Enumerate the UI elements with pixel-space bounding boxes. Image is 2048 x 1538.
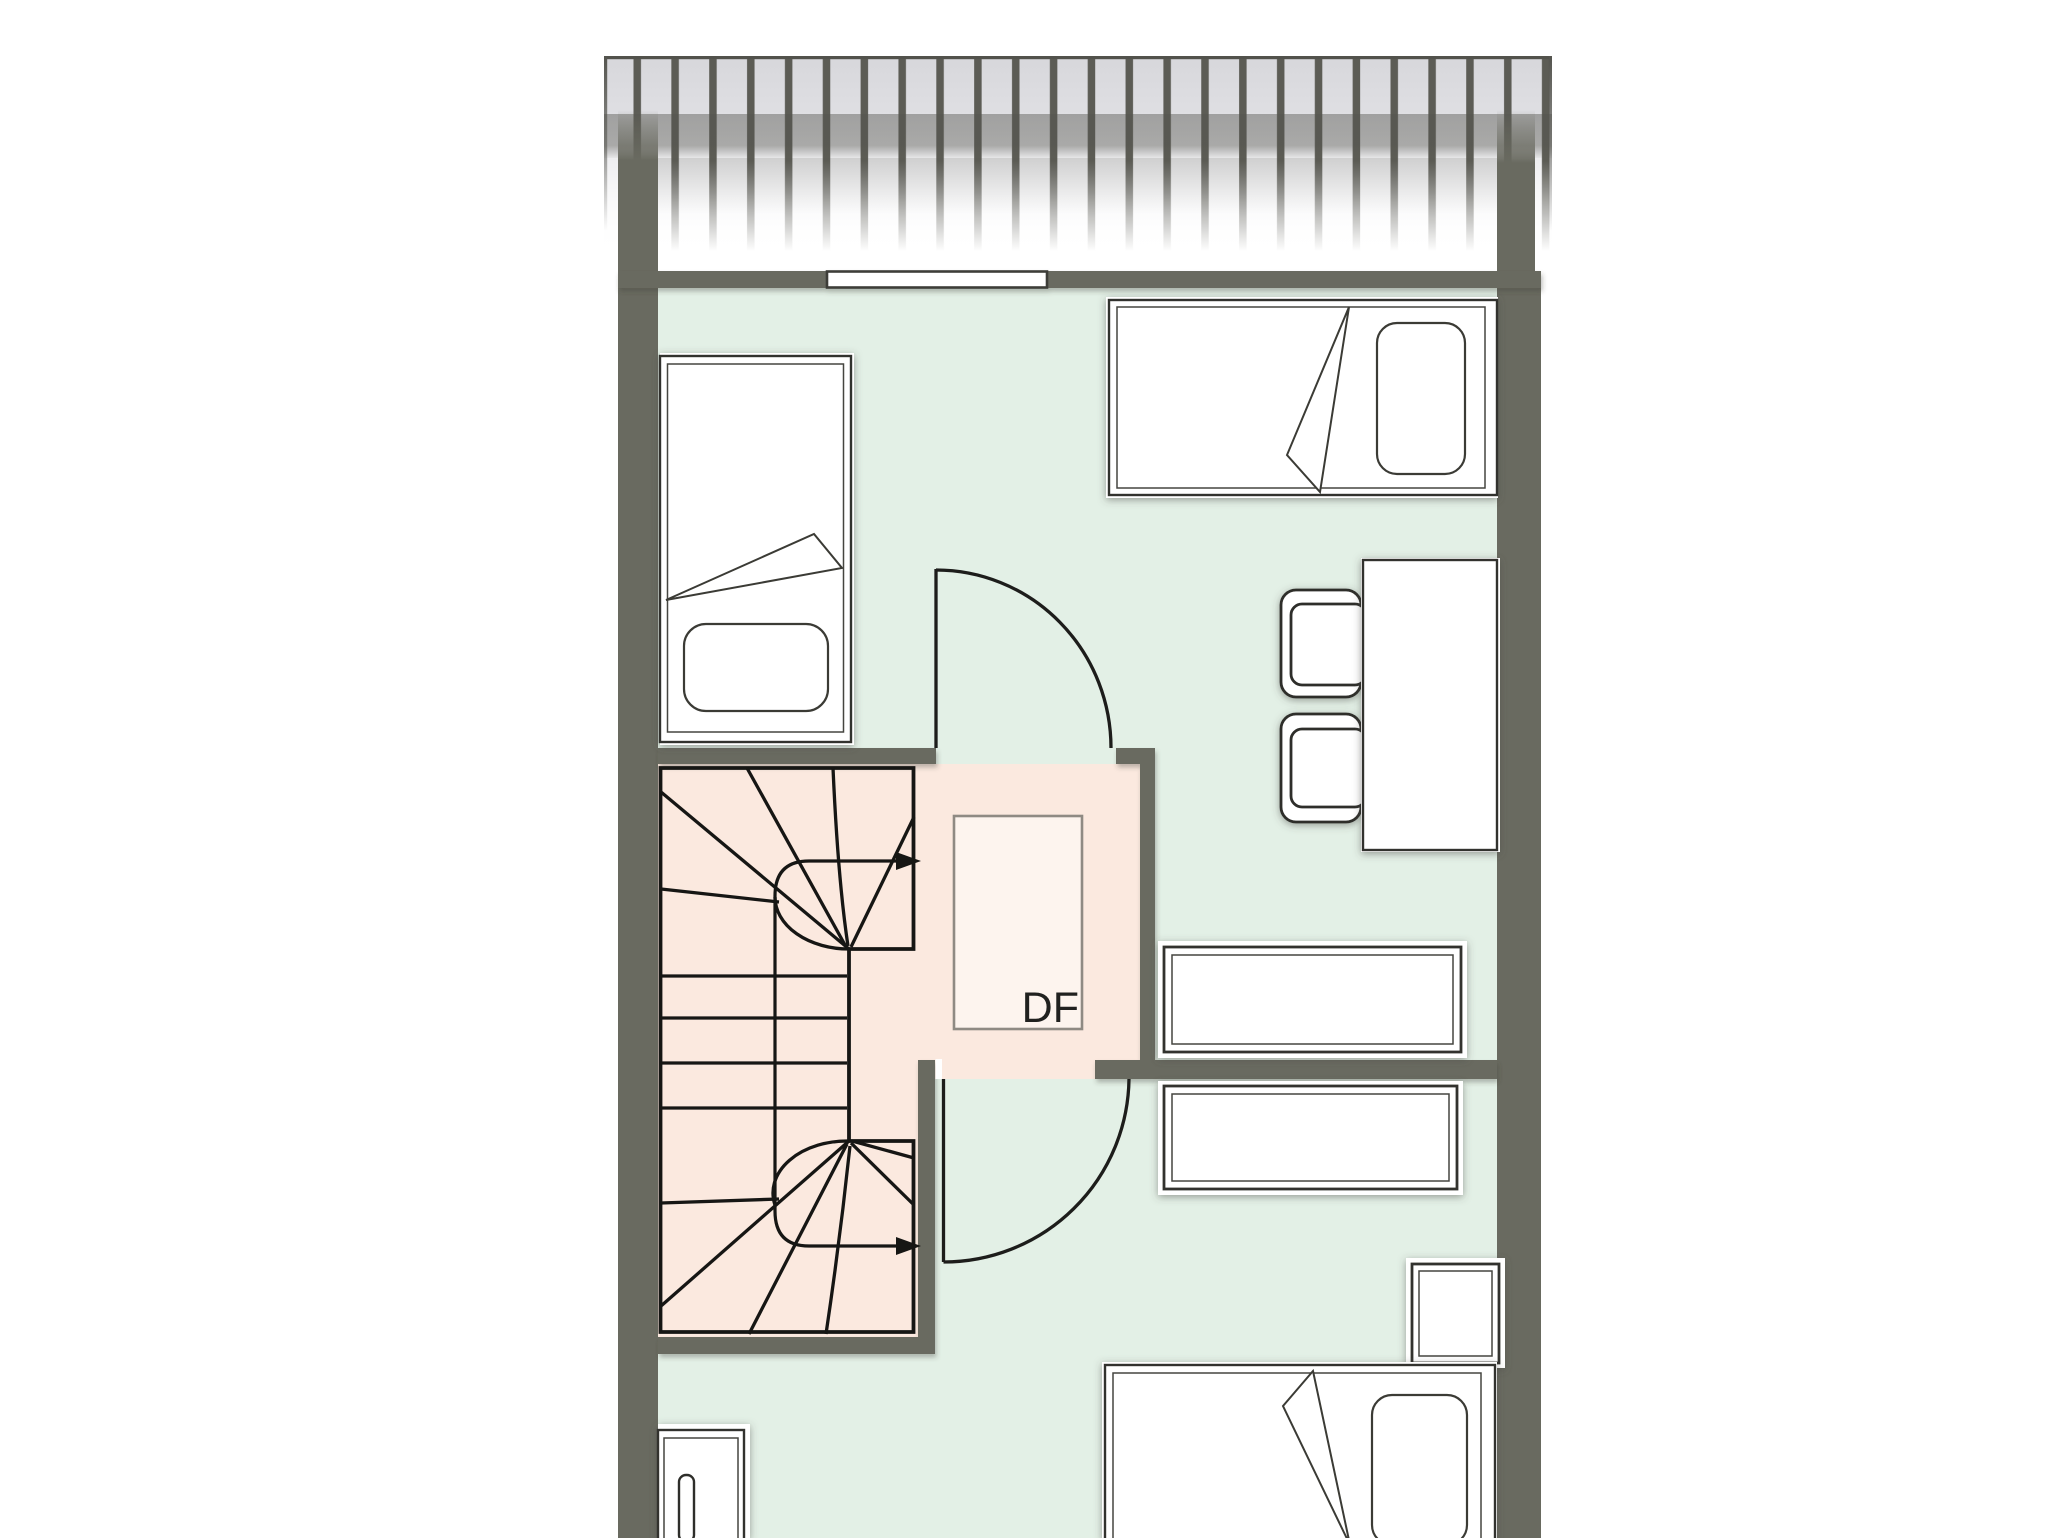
svg-text:DF: DF bbox=[1022, 984, 1079, 1032]
